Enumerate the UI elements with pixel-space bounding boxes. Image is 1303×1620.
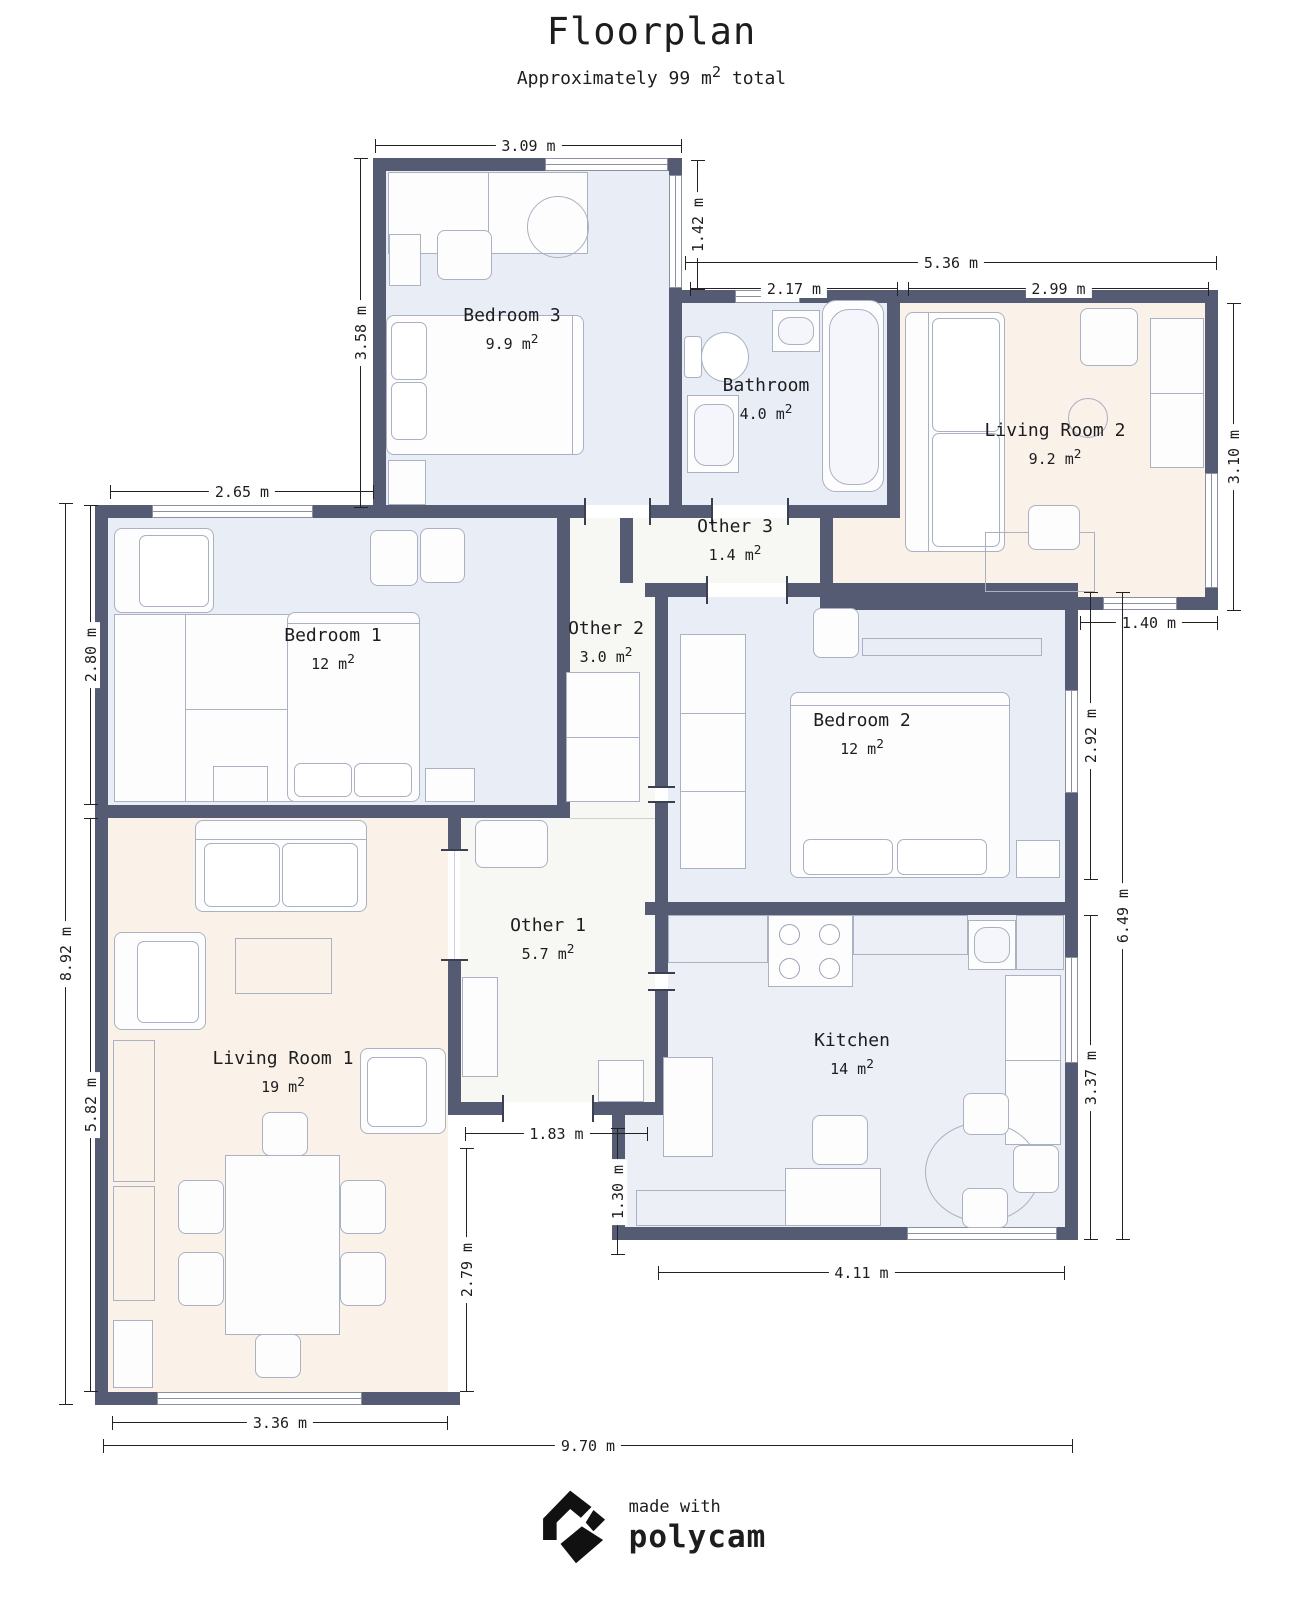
cabinet-icon [113, 1320, 153, 1388]
armchair-icon [114, 932, 206, 1030]
dimension-line: 2.80 m [90, 505, 91, 805]
door-jamb-icon [592, 1095, 594, 1122]
floorplan-canvas: Bedroom 3 9.9 m2 Bathroom 4.0 m2 Living … [0, 0, 1303, 1460]
room-area: 5.7 m2 [510, 942, 586, 963]
window-icon [907, 1227, 1057, 1240]
dresser-icon [389, 234, 421, 286]
counter-icon [1016, 915, 1064, 970]
chair-icon [812, 1115, 868, 1165]
nightstand-icon [388, 460, 426, 505]
window-icon [669, 175, 682, 288]
footer-text: made with polycam [629, 1497, 767, 1555]
window-icon [152, 505, 313, 518]
room-label: Bedroom 2 12 m2 [813, 710, 911, 758]
dimension-line: 2.92 m [1090, 592, 1091, 880]
cabinet-icon [113, 1186, 155, 1301]
footer: made with polycam [0, 1478, 1303, 1574]
room-label: Kitchen 14 m2 [814, 1030, 890, 1078]
wardrobe-icon [114, 614, 299, 802]
armchair-icon [360, 1048, 446, 1134]
door-jamb-icon [441, 959, 468, 961]
sink-icon [772, 310, 820, 352]
dimension-line: 5.36 m [685, 262, 1217, 263]
room-area: 14 m2 [814, 1057, 890, 1078]
rug-icon [527, 196, 589, 258]
room-label: Other 3 1.4 m2 [697, 516, 773, 564]
dimension-line: 1.40 m [1080, 622, 1218, 623]
door-jamb-icon [648, 786, 675, 788]
table-icon [598, 1060, 644, 1102]
door-jamb-icon [502, 1095, 504, 1122]
island-icon [785, 1168, 881, 1226]
room-name: Living Room 1 [213, 1048, 354, 1069]
chair-icon [262, 1112, 308, 1156]
room-name: Other 3 [697, 516, 773, 537]
wall [887, 290, 900, 518]
room-area: 9.2 m2 [985, 447, 1126, 468]
bathtub-icon [822, 300, 884, 492]
chair-icon [962, 1188, 1008, 1228]
nightstand-icon [1016, 840, 1060, 878]
door-opening [655, 787, 668, 802]
kitchen-sink-icon [968, 920, 1016, 970]
window-icon [1065, 957, 1078, 1063]
chair-icon [1013, 1145, 1059, 1193]
door-jamb-icon [786, 576, 788, 604]
tv-cabinet-icon [113, 1040, 155, 1182]
window-icon [157, 1392, 362, 1405]
wall [645, 902, 1078, 915]
chair-icon [370, 530, 418, 586]
dimension-line: 2.79 m [466, 1148, 467, 1392]
room-name: Living Room 2 [985, 420, 1126, 441]
dimension-line: 6.49 m [1122, 592, 1123, 1240]
door-jamb-icon [648, 989, 675, 991]
cabinet-icon [636, 1190, 786, 1226]
wall [95, 805, 570, 818]
wardrobe-icon [680, 634, 746, 869]
dimension-line: 2.65 m [110, 491, 374, 492]
dimension-line: 3.09 m [375, 145, 682, 146]
door-jamb-icon [584, 498, 586, 525]
floorplan-page: Floorplan Approximately 99 m2 total [0, 0, 1303, 1620]
chair-icon [813, 608, 859, 658]
door-jamb-icon [787, 498, 789, 525]
wall [448, 818, 461, 850]
nightstand-icon [425, 768, 475, 802]
dimension-line: 1.30 m [617, 1128, 618, 1255]
room-area: 19 m2 [213, 1075, 354, 1096]
chair-icon [255, 1334, 301, 1378]
chair-icon [178, 1180, 224, 1234]
room-label: Bathroom 4.0 m2 [723, 375, 810, 423]
chair-icon [420, 528, 465, 583]
chair-icon [1028, 505, 1080, 550]
fridge-icon [1005, 975, 1061, 1145]
room-area: 12 m2 [284, 652, 382, 673]
room-area: 3.0 m2 [568, 645, 644, 666]
dimension-line: 5.82 m [90, 818, 91, 1392]
door-jamb-icon [706, 576, 708, 604]
chair-icon [963, 1093, 1009, 1135]
counter-icon [668, 915, 768, 963]
shelf-icon [862, 638, 1042, 656]
chair-icon [340, 1252, 386, 1306]
dimension-line: 3.10 m [1233, 303, 1234, 611]
room-label: Bedroom 1 12 m2 [284, 625, 382, 673]
room-name: Bedroom 1 [284, 625, 382, 646]
room-label: Living Room 1 19 m2 [213, 1048, 354, 1096]
cabinet-icon [1150, 318, 1204, 468]
door-jamb-icon [648, 801, 675, 803]
room-area: 4.0 m2 [723, 402, 810, 423]
room-name: Other 1 [510, 915, 586, 936]
sofa-icon [114, 528, 214, 613]
dimension-line: 1.42 m [697, 160, 698, 290]
room-name: Bedroom 2 [813, 710, 911, 731]
wall [820, 505, 833, 610]
cabinet-icon [663, 1057, 713, 1157]
counter-icon [853, 915, 968, 955]
window-icon [1103, 597, 1177, 610]
door-opening [585, 505, 650, 518]
chair-icon [340, 1180, 386, 1234]
dimension-line: 1.83 m [465, 1133, 648, 1134]
room-name: Kitchen [814, 1030, 890, 1051]
wall [373, 158, 386, 518]
room-area: 9.9 m2 [463, 332, 561, 353]
room-name: Other 2 [568, 618, 644, 639]
wall [448, 960, 461, 1115]
window-icon [1065, 690, 1078, 793]
room-area: 1.4 m2 [697, 543, 773, 564]
door-opening [707, 583, 787, 597]
door-opening [503, 1102, 593, 1115]
dimension-line: 4.11 m [658, 1272, 1065, 1273]
polycam-logo-icon [537, 1478, 615, 1574]
dimension-line: 3.37 m [1090, 915, 1091, 1240]
nightstand-icon [213, 766, 268, 802]
chair-icon [1080, 308, 1138, 366]
stove-icon [768, 915, 853, 987]
room-name: Bedroom 3 [463, 305, 561, 326]
wall [1065, 583, 1078, 1240]
desk-chair-icon [437, 230, 492, 280]
dimension-line: 3.36 m [112, 1422, 448, 1423]
cabinet-icon [462, 977, 498, 1077]
dimension-line: 8.92 m [65, 503, 66, 1405]
dimension-line: 2.99 m [908, 288, 1209, 289]
door-opening [655, 973, 668, 990]
dimension-line: 3.58 m [360, 158, 361, 508]
window-icon [1205, 473, 1218, 588]
chair-icon [178, 1252, 224, 1306]
coffee-table-icon [235, 938, 332, 994]
room-boundary-line [570, 818, 655, 819]
door-jamb-icon [648, 972, 675, 974]
room-name: Bathroom [723, 375, 810, 396]
door-jamb-icon [649, 498, 651, 525]
room-label: Bedroom 3 9.9 m2 [463, 305, 561, 353]
made-with-label: made with [629, 1497, 767, 1517]
room-label: Living Room 2 9.2 m2 [985, 420, 1126, 468]
sofa-icon [195, 820, 367, 912]
cabinet-icon [566, 672, 640, 802]
dining-table-icon [225, 1155, 340, 1335]
room-boundary-line [454, 851, 455, 959]
room-label: Other 1 5.7 m2 [510, 915, 586, 963]
room-label: Other 2 3.0 m2 [568, 618, 644, 666]
dimension-line: 9.70 m [103, 1445, 1073, 1446]
dimension-line: 2.17 m [690, 288, 898, 289]
wall [655, 583, 668, 1115]
window-icon [545, 158, 668, 171]
chair-icon [475, 820, 548, 868]
brand-wordmark: polycam [629, 1519, 767, 1555]
room-area: 12 m2 [813, 737, 911, 758]
